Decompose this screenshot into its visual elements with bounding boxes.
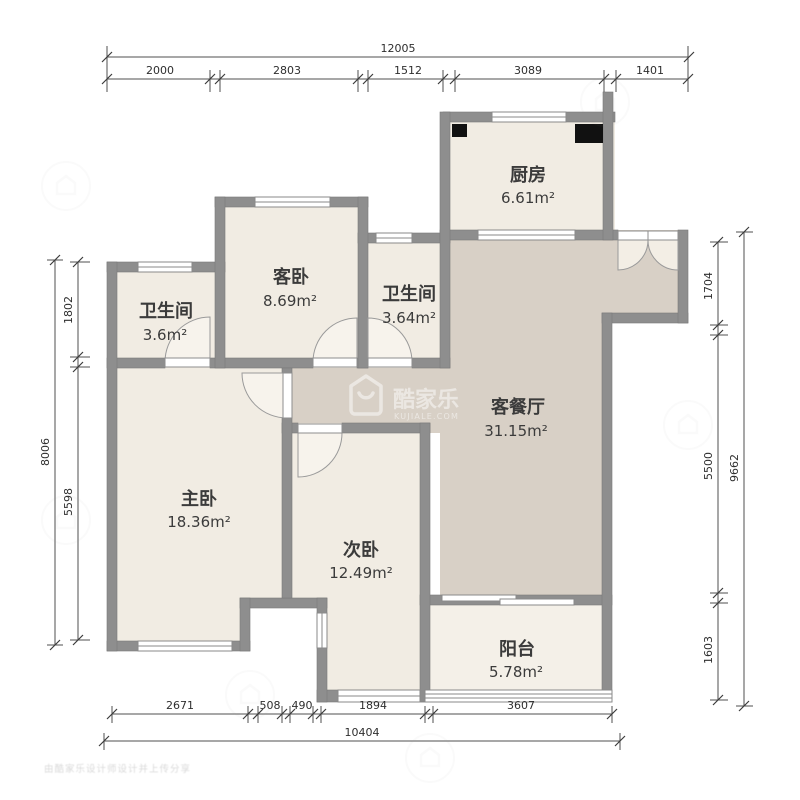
dim-top-2: 2803 — [273, 64, 301, 77]
entry-door-leaf — [618, 231, 648, 240]
bathroom-small-area: 3.6m² — [143, 326, 187, 344]
dim-top-total: 12005 — [381, 42, 416, 55]
second-bedroom-area: 12.49m² — [329, 564, 393, 582]
guest-bedroom-label: 客卧 — [273, 266, 309, 288]
master-bedroom-area: 18.36m² — [167, 513, 231, 531]
outer-left-wall — [107, 262, 117, 651]
kitchen-flue-large — [575, 124, 603, 143]
kitchen-area: 6.61m² — [501, 189, 555, 207]
guest-bedroom-area: 8.69m² — [263, 292, 317, 310]
living-dining-label: 客餐厅 — [491, 396, 545, 418]
dim-bottom-1: 2671 — [166, 699, 194, 712]
floor-plan-page: 厨房 6.61m² 客卧 8.69m² 卫生间 3.64m² 卫生间 3.6m²… — [0, 0, 800, 800]
bathroom-small-label: 卫生间 — [139, 300, 193, 322]
master-bedroom-label: 主卧 — [181, 488, 217, 510]
balcony-label: 阳台 — [499, 638, 535, 660]
second-bedroom-door-leaf — [298, 424, 342, 433]
outer-right-top-wall — [678, 230, 688, 323]
dim-bottom-5: 3607 — [507, 699, 535, 712]
watermark-brand: 酷家乐 — [393, 387, 459, 413]
dim-bottom-total: 10404 — [345, 726, 380, 739]
balcony-sliding-door-panel — [500, 599, 574, 605]
living-dining-area: 31.15m² — [484, 422, 548, 440]
master-right-wall — [282, 418, 292, 598]
dim-left-1: 1802 — [62, 296, 75, 324]
dim-top-5: 1401 — [636, 64, 664, 77]
kitchen-flue-small — [452, 124, 467, 137]
entry-door-leaf — [648, 231, 678, 240]
guest-bedroom-right-wall — [358, 197, 368, 368]
kitchen-right-wall — [603, 92, 613, 240]
guest-bedroom-door-leaf — [313, 358, 357, 367]
bathroom-main-area: 3.64m² — [382, 309, 436, 327]
watermark-domain: KUJIALE.COM — [394, 412, 459, 421]
balcony-area: 5.78m² — [489, 663, 543, 681]
second-bedroom-label: 次卧 — [343, 539, 379, 561]
kitchen-left-wall — [440, 112, 450, 368]
dim-right-1: 1704 — [702, 272, 715, 300]
dim-left-total: 8006 — [39, 438, 52, 466]
master-bedroom-door-leaf — [283, 373, 292, 418]
dim-bottom-3: 490 — [292, 699, 313, 712]
dim-right-2: 5500 — [702, 452, 715, 480]
dim-top-1: 2000 — [146, 64, 174, 77]
dim-bottom-4: 1894 — [359, 699, 387, 712]
footer-watermark: 由酷家乐设计师设计并上传分享 — [44, 763, 191, 775]
kitchen-label: 厨房 — [510, 164, 546, 186]
master-step-wall — [240, 598, 327, 608]
dim-right-total: 9662 — [728, 454, 741, 482]
bathroom-main-door-leaf — [368, 358, 412, 367]
outer-right-wall — [602, 313, 612, 702]
dim-top-4: 3089 — [514, 64, 542, 77]
dim-top-3: 1512 — [394, 64, 422, 77]
floor-plan-canvas: 厨房 6.61m² 客卧 8.69m² 卫生间 3.64m² 卫生间 3.6m²… — [0, 0, 800, 800]
right-step-wall — [602, 313, 688, 323]
bathroom-main-label: 卫生间 — [382, 283, 436, 305]
corridor-bottom-wall — [342, 423, 430, 433]
bathroom-small-door-leaf — [165, 358, 210, 367]
exterior-notch — [250, 608, 317, 702]
dim-right-3: 1603 — [702, 636, 715, 664]
second-bedroom-right-wall — [420, 423, 430, 702]
dim-bottom-2: 508 — [260, 699, 281, 712]
